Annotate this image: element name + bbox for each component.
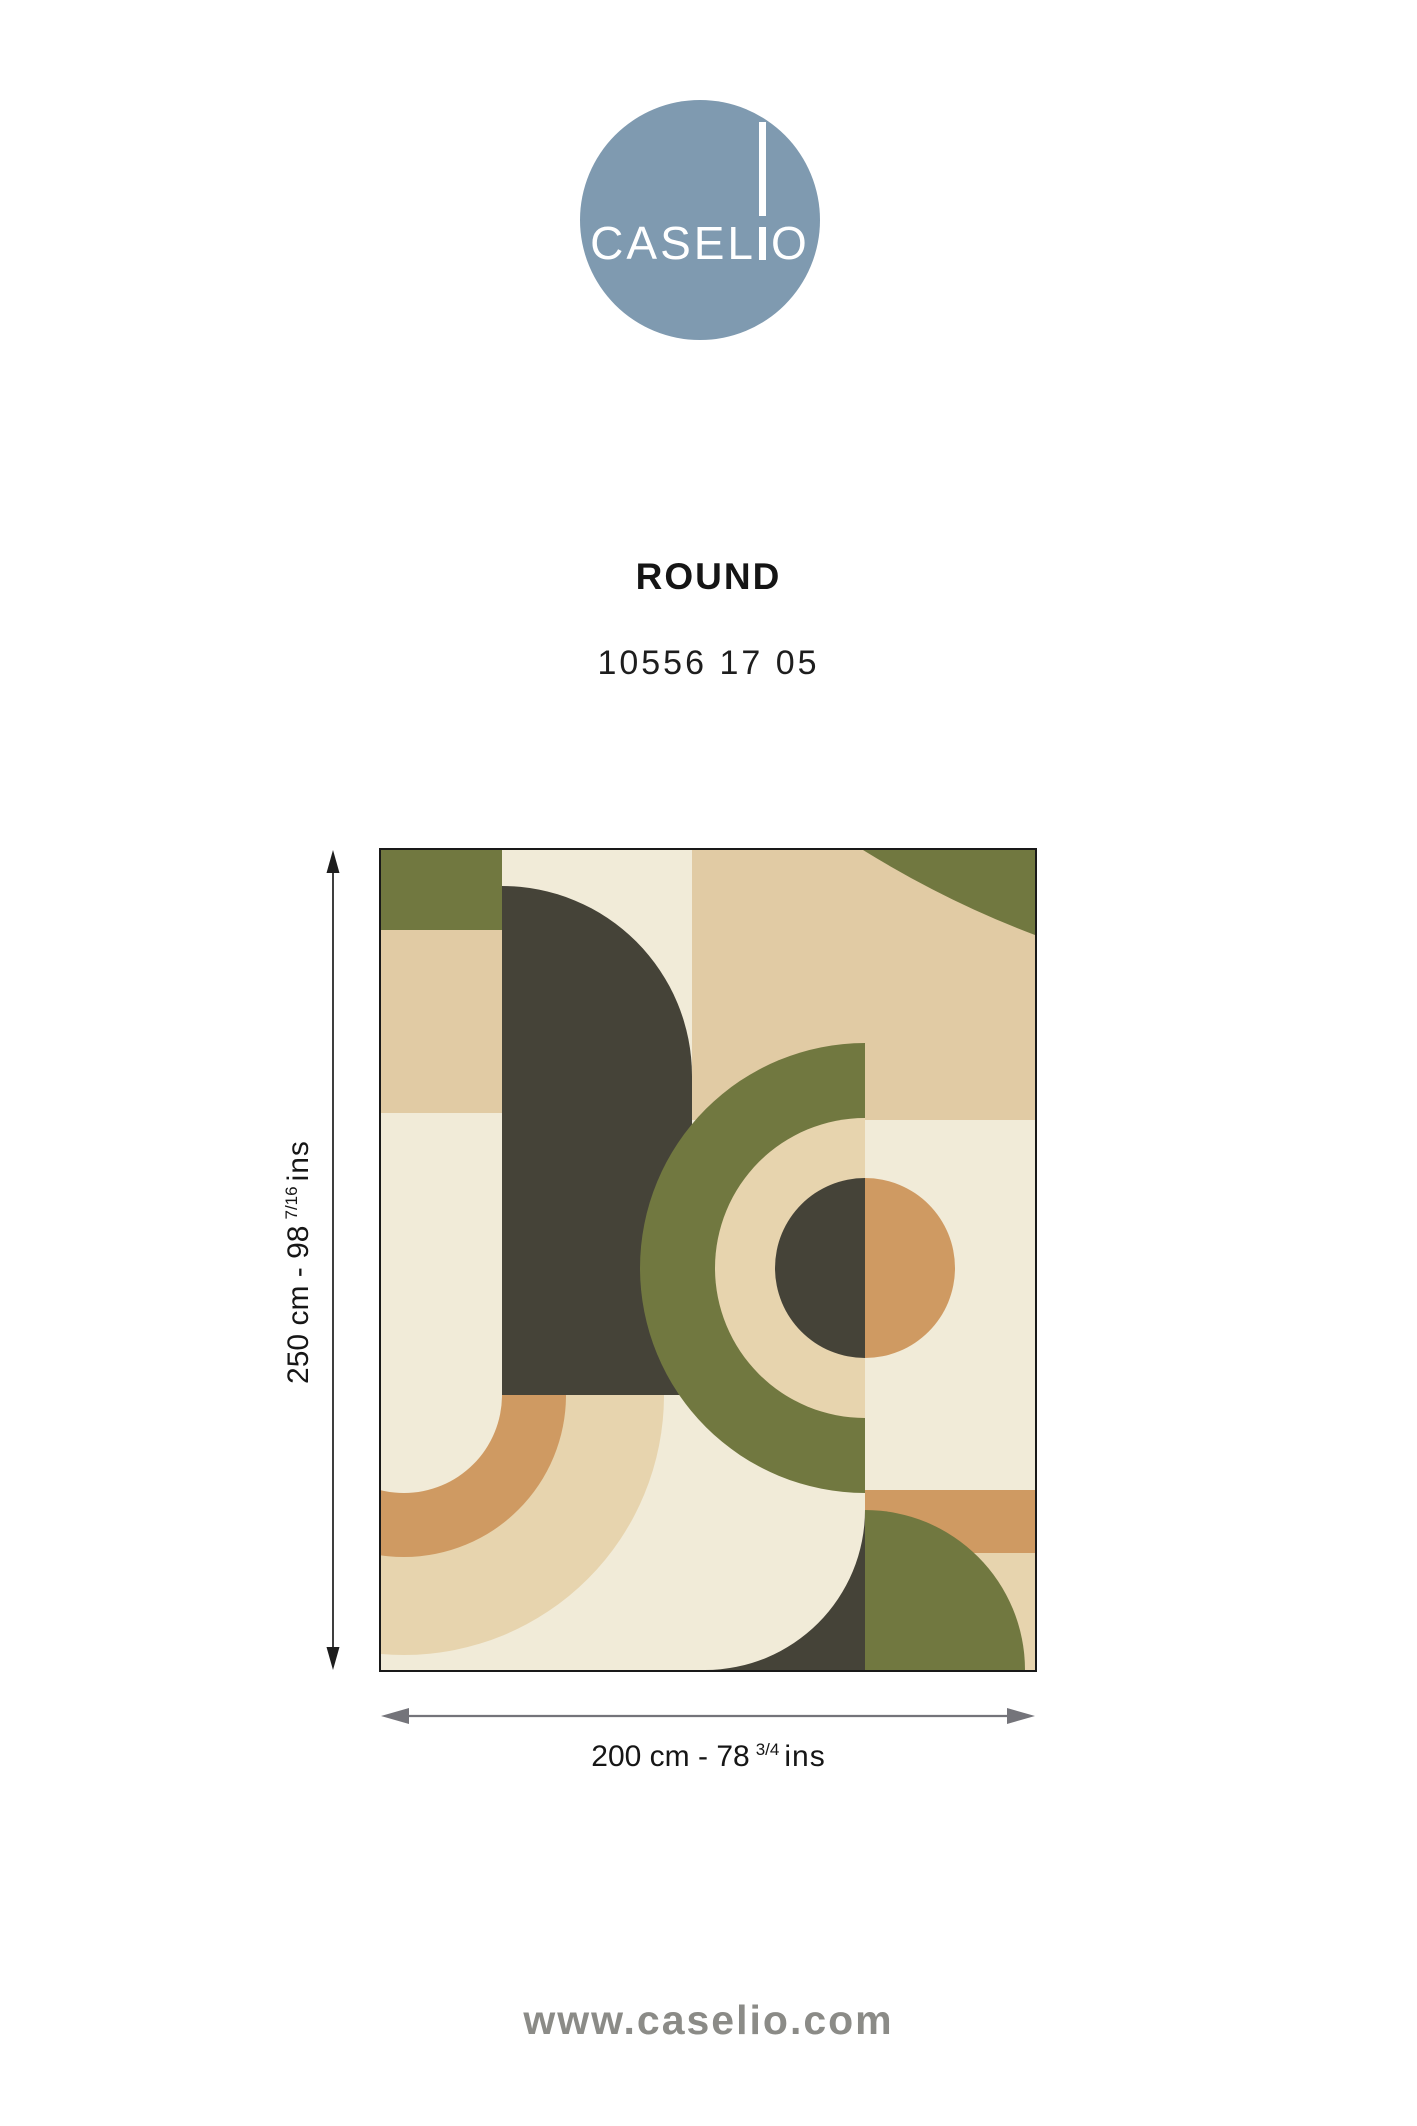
logo-wordmark: CASEL O xyxy=(580,226,820,260)
height-main: 250 cm - 98 xyxy=(282,1226,315,1384)
width-dimension-label: 200 cm - 783/4ins xyxy=(0,1740,1417,1774)
collection-name: ROUND xyxy=(0,556,1417,598)
website-url: www.caselio.com xyxy=(0,1997,1417,2044)
product-sheet: CASEL O ROUND 10556 17 05 xyxy=(0,0,1417,2126)
wallpaper-mural-preview xyxy=(379,848,1037,1672)
caselio-logo: CASEL O xyxy=(580,100,820,340)
logo-text-right: O xyxy=(771,227,810,260)
height-unit: ins xyxy=(282,1140,315,1181)
mural-olive-rect xyxy=(381,850,502,930)
mural-left-tan-rect xyxy=(381,930,502,1113)
width-fraction: 3/4 xyxy=(756,1740,780,1760)
width-arrow-icon xyxy=(381,1703,1035,1729)
product-reference: 10556 17 05 xyxy=(0,644,1417,683)
logo-i-bar-icon xyxy=(759,227,766,260)
logo-text-left: CASEL xyxy=(590,227,756,260)
height-arrow-icon xyxy=(321,850,345,1670)
width-main: 200 cm - 78 xyxy=(591,1740,749,1773)
width-unit: ins xyxy=(784,1740,825,1773)
height-dimension-label: 250 cm - 987/16ins xyxy=(282,1052,322,1472)
mural-artwork xyxy=(381,850,1035,1670)
height-fraction: 7/16 xyxy=(282,1186,302,1219)
